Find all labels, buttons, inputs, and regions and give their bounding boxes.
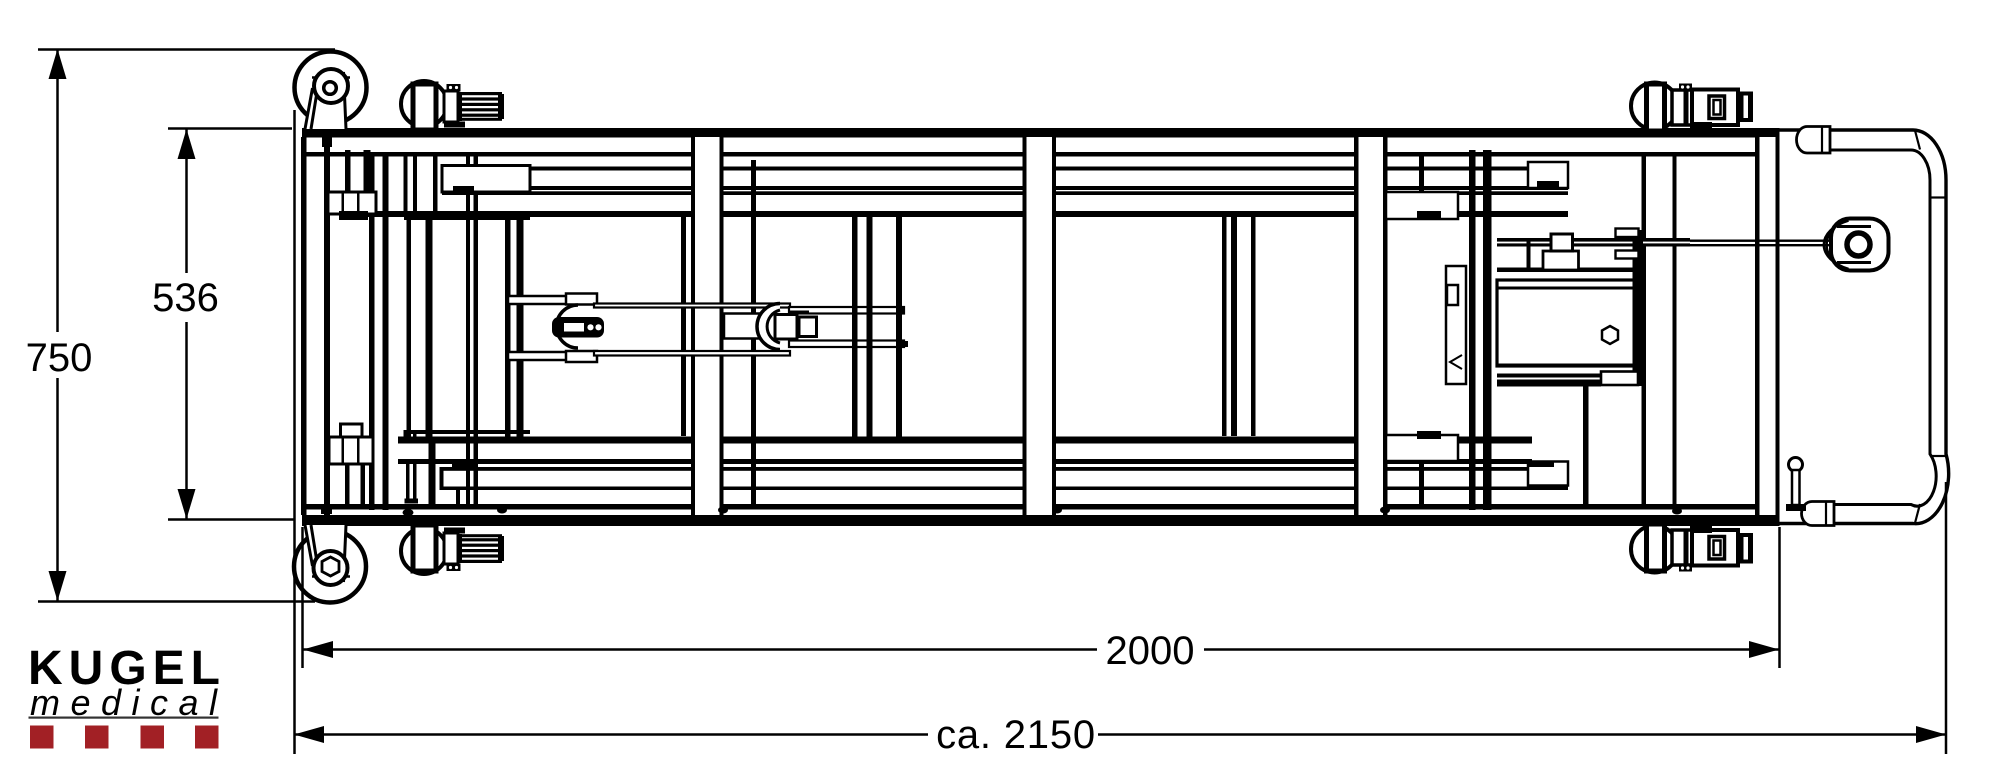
svg-text:2000: 2000: [1106, 629, 1195, 673]
svg-text:536: 536: [152, 276, 219, 320]
svg-text:750: 750: [26, 336, 93, 380]
svg-text:ca. 2150: ca. 2150: [936, 713, 1096, 757]
